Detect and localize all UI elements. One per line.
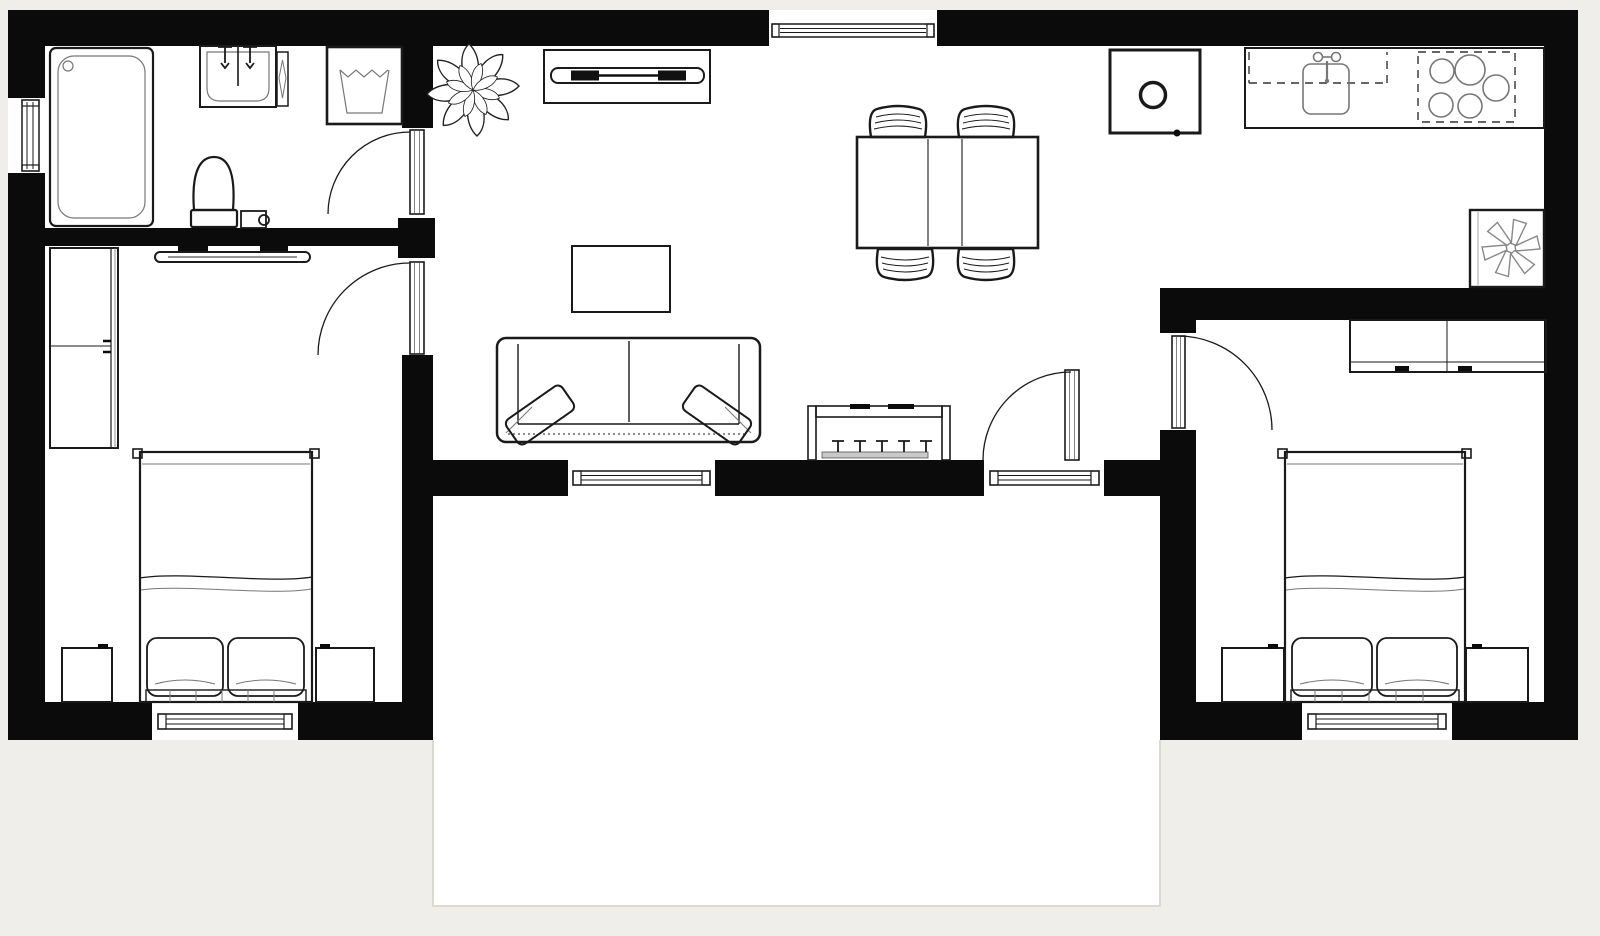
bathroom-window [8,98,45,173]
terrace [433,496,1160,906]
bedroom-right-window [1302,702,1452,740]
bedroom-left-window [152,702,298,740]
dining-chair [870,106,926,137]
living-room-top-window [769,10,937,46]
floor-plan-canvas [0,0,1600,936]
dining-chair [877,249,933,280]
dining-chair [958,249,1014,280]
living-room-bottom-window [568,460,715,496]
floor-plan-svg [0,0,1600,936]
dining-chair [958,106,1014,137]
